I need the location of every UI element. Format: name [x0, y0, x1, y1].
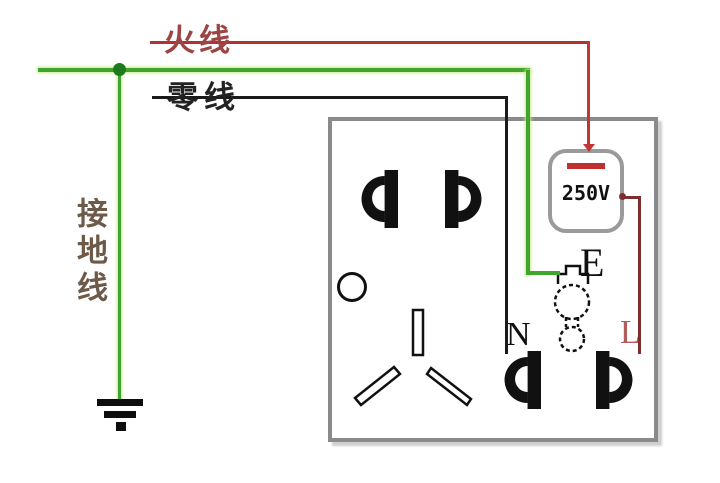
neutral-terminal-hole-icon — [493, 351, 541, 409]
live-wire-vertical — [587, 41, 590, 148]
socket-wiring-diagram: 火线 零线 接地线 250V — [0, 0, 720, 483]
ground-wire-vertical-to-socket — [526, 70, 530, 275]
neutral-wire-vertical — [505, 96, 508, 354]
socket-hole-icon — [445, 170, 493, 228]
wire-junction-dot — [113, 63, 126, 76]
live-wire-label: 火线 — [164, 25, 234, 56]
live-terminal-wire-vertical — [638, 196, 641, 354]
mounting-hole-icon — [337, 272, 367, 302]
earth-ground-icon — [116, 422, 126, 431]
ground-wire-horizontal — [38, 68, 530, 72]
voltage-rating-box: 250V — [548, 149, 624, 233]
voltage-rating-label: 250V — [552, 181, 620, 205]
live-wire-arrowhead-icon — [583, 144, 595, 152]
ground-wire-to-e-terminal — [526, 271, 560, 275]
live-terminal-hole-icon — [596, 351, 644, 409]
socket-hole-icon — [350, 170, 398, 228]
neutral-wire-label: 零线 — [167, 82, 241, 113]
socket-outlet-box: 250V E N L — [328, 117, 658, 442]
earth-ground-icon — [104, 411, 136, 418]
terminal-e-label: E — [580, 239, 604, 286]
terminal-n-label: N — [506, 316, 531, 354]
ground-wire-drop-to-earth — [118, 70, 121, 402]
earth-ground-icon — [97, 399, 143, 406]
live-terminal-wire-junction-dot — [619, 193, 626, 200]
polarity-dash-icon — [567, 163, 605, 169]
three-prong-slots-icon — [345, 305, 485, 410]
ground-wire-label: 接地线 — [74, 197, 105, 308]
